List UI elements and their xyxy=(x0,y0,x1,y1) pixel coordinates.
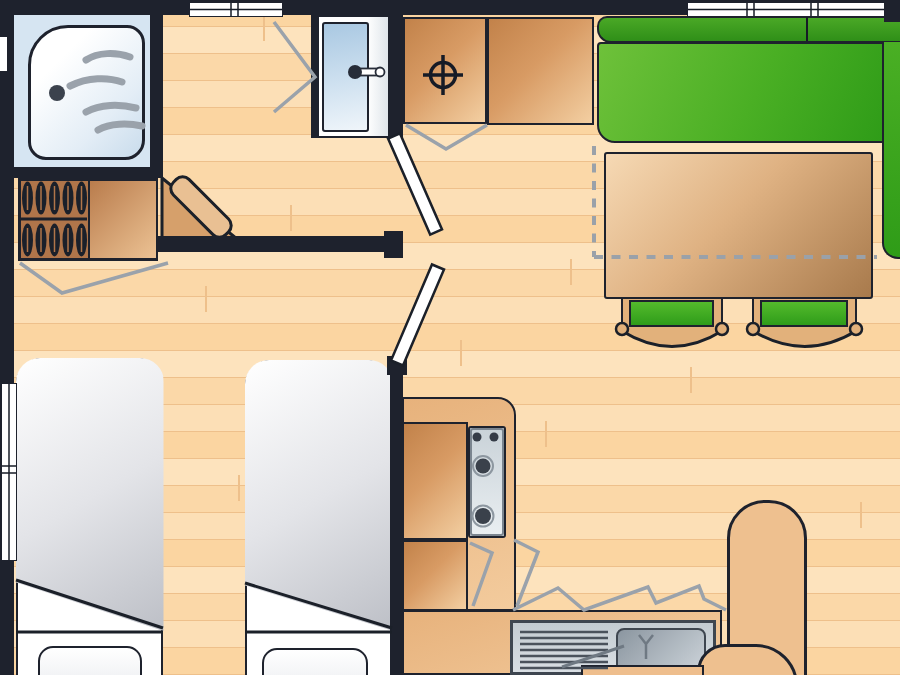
sofa-side-seat xyxy=(882,42,900,259)
window-top-left xyxy=(189,2,283,17)
wall-end-post xyxy=(384,231,403,258)
wall-left xyxy=(0,0,14,675)
stool xyxy=(752,296,857,334)
kitchen-cabinet xyxy=(402,422,468,540)
sofa-backrest xyxy=(597,16,900,43)
floor-seam xyxy=(460,340,462,366)
wall-shower-right xyxy=(150,0,163,178)
door-hinge-post xyxy=(387,356,407,375)
bed-left xyxy=(16,358,163,675)
wardrobe xyxy=(18,178,158,261)
bed-right xyxy=(245,360,392,675)
floor-seam xyxy=(290,205,292,231)
door-leaf-bedroom xyxy=(391,265,444,366)
wall-washroom-right xyxy=(390,15,403,138)
corner-shelf-item xyxy=(167,173,235,241)
window-top-right xyxy=(687,2,885,17)
wall-bedroom xyxy=(158,236,390,252)
floor-seam xyxy=(860,502,862,528)
kitchen-stool xyxy=(581,665,704,675)
floor-seam xyxy=(570,259,572,285)
hob xyxy=(468,426,506,538)
floor-plan xyxy=(0,0,900,675)
window-left xyxy=(1,383,17,561)
wall-vent xyxy=(0,37,7,71)
floor-seam xyxy=(205,286,207,312)
shower-tray xyxy=(28,25,145,160)
duvet xyxy=(245,360,393,675)
dining-table xyxy=(604,152,873,299)
floor-seam xyxy=(263,15,265,41)
wardrobe-shelf xyxy=(88,181,156,258)
wall-kitchen xyxy=(390,357,403,675)
cabinet-storage xyxy=(487,17,594,125)
door-leaf-washroom xyxy=(388,133,442,234)
wall-shower-bottom xyxy=(0,167,163,178)
stool-seat xyxy=(629,300,714,327)
kitchen-cabinet xyxy=(402,540,468,611)
floor-seam xyxy=(545,421,547,447)
wall-corner-right xyxy=(884,0,900,22)
stool-seat xyxy=(760,300,848,327)
stool xyxy=(621,296,723,334)
pillow xyxy=(262,648,368,675)
cabinet-toilet xyxy=(403,17,487,124)
shower-drain xyxy=(49,85,65,101)
wall-washroom-left xyxy=(311,15,319,138)
sofa-seat xyxy=(597,42,884,143)
washbasin xyxy=(322,22,369,132)
floor-seam xyxy=(238,475,240,501)
pillow xyxy=(38,646,142,675)
duvet xyxy=(16,358,164,675)
floor-seam xyxy=(690,367,692,393)
